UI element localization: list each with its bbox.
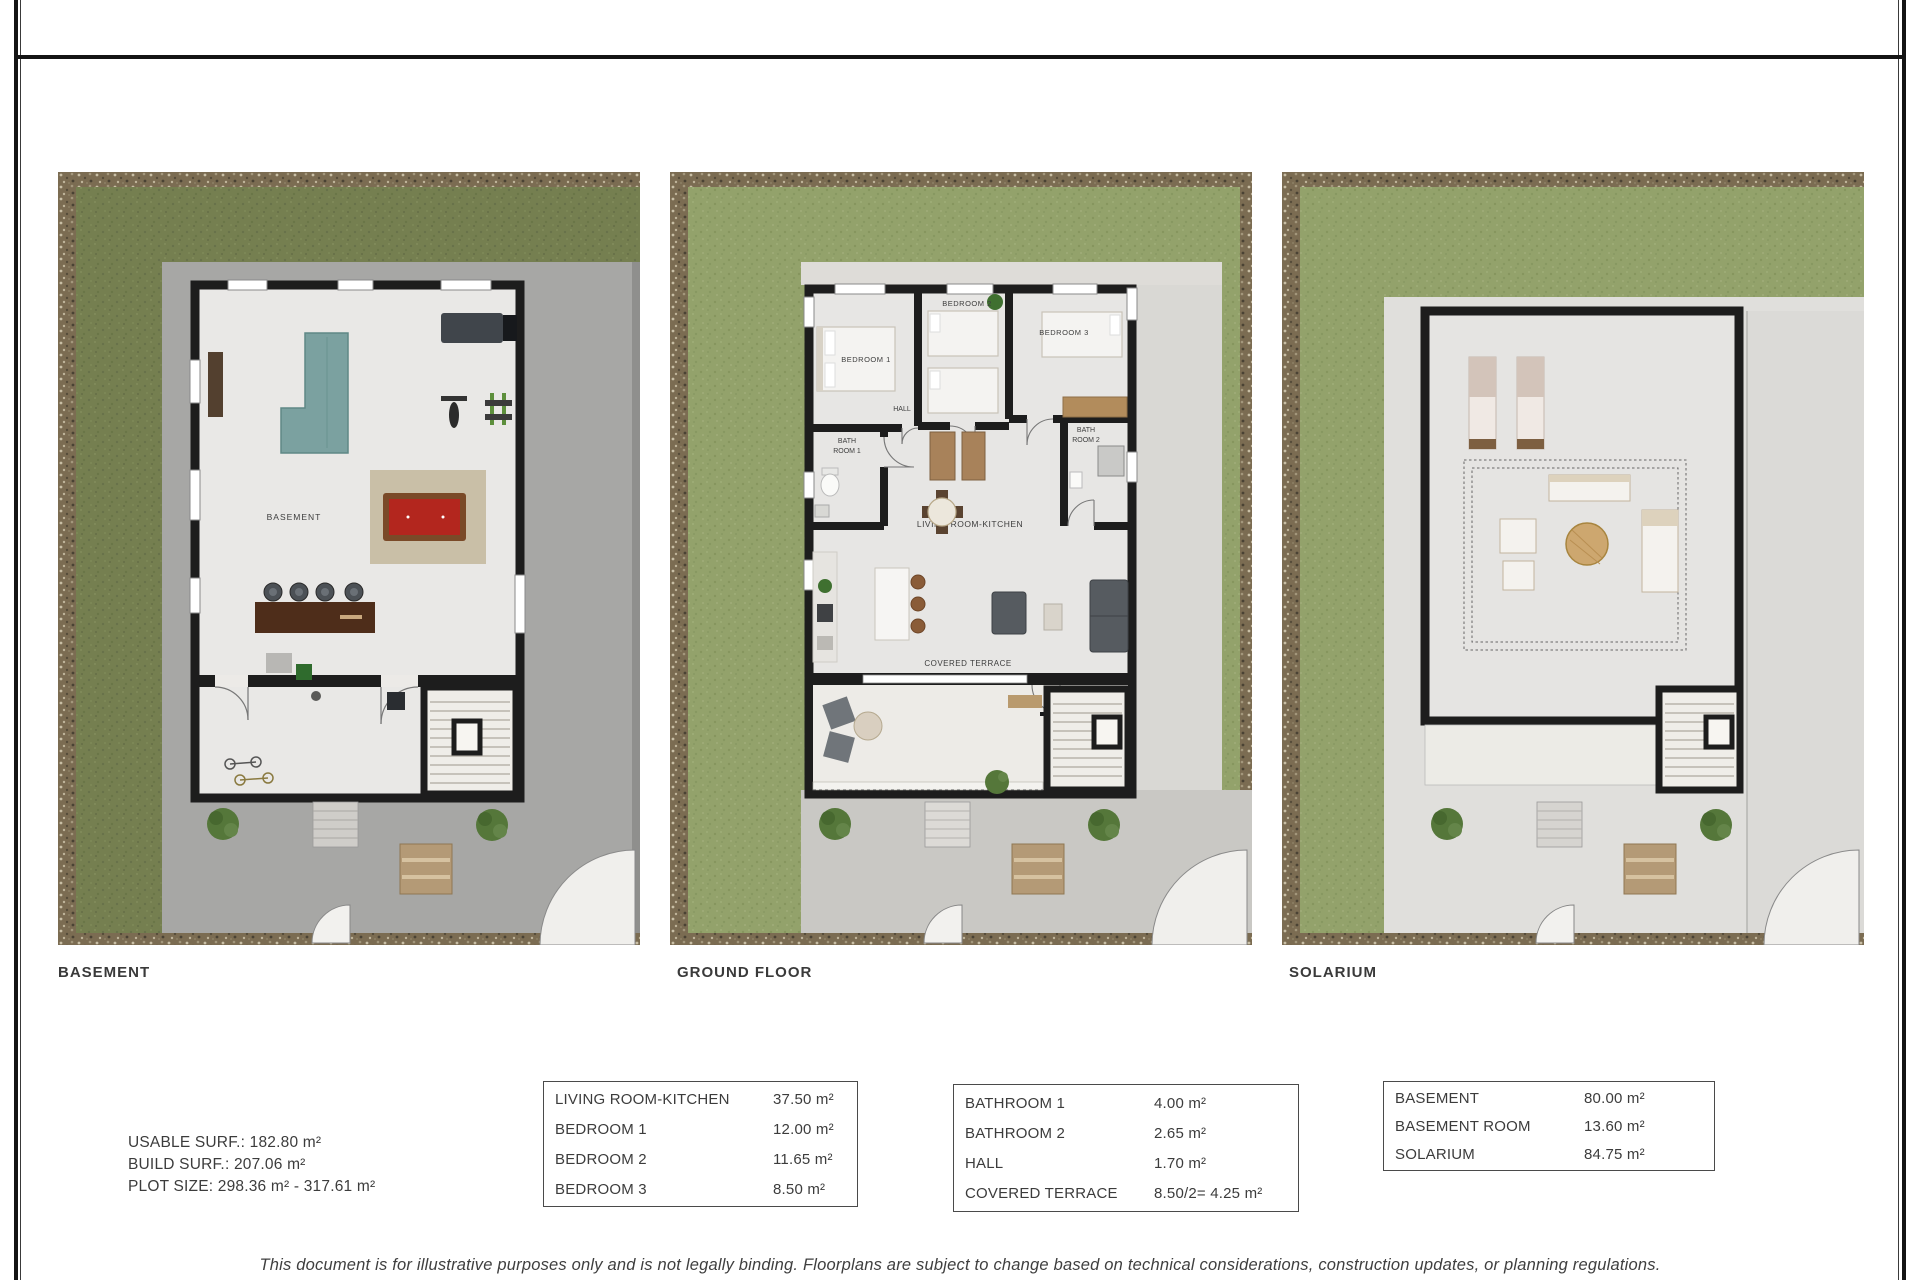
pool-table [383, 493, 466, 541]
area-value-cell: 11.65 m² [773, 1151, 857, 1168]
side-roof-strip [1136, 262, 1222, 858]
area-value-cell: 8.50/2= 4.25 m² [1154, 1185, 1298, 1202]
stairs [1047, 689, 1128, 790]
armchair [992, 592, 1026, 634]
area-value-cell: 1.70 m² [1154, 1155, 1298, 1172]
terrace-bench [1008, 695, 1042, 708]
table-row: BEDROOM 3 8.50 m² [544, 1174, 857, 1204]
bush-right [476, 809, 508, 841]
table-row: COVERED TERRACE 8.50/2= 4.25 m² [954, 1178, 1298, 1208]
solarium-plan-panel: SOLARIUM [1282, 172, 1864, 982]
plant [818, 579, 832, 593]
usable-surface-line: USABLE SURF.: 182.80 m² [128, 1132, 375, 1154]
room-label-cell: BATHROOM 1 [954, 1095, 1154, 1112]
room-label-terrace: COVERED TERRACE [924, 659, 1011, 668]
ground-floor-plan-panel: BEDROOM 1 BEDROOM 2 BEDROOM 3 HALL BATH … [670, 172, 1252, 982]
room-label-basement: BASEMENT [267, 512, 322, 522]
bathrooms-areas-table: BATHROOM 1 4.00 m² BATHROOM 2 2.65 m² HA… [953, 1084, 1299, 1212]
toilet [1070, 472, 1082, 488]
room-label-bedroom3: BEDROOM 3 [1039, 328, 1089, 337]
page-border-left [14, 0, 21, 1280]
plan-caption-basement: BASEMENT [58, 964, 150, 981]
bush-left [1431, 808, 1463, 840]
table-row: BASEMENT ROOM 13.60 m² [1384, 1112, 1714, 1140]
area-value-cell: 2.65 m² [1154, 1125, 1298, 1142]
front-steps [925, 802, 970, 847]
concrete-edge [632, 262, 640, 933]
room-label-cell: SOLARIUM [1384, 1146, 1584, 1163]
terrace-window-band [863, 675, 1027, 683]
wardrobe [962, 432, 985, 480]
page-border-right [1898, 0, 1906, 1280]
stairs [1659, 689, 1740, 790]
ground-floorplan-svg: BEDROOM 1 BEDROOM 2 BEDROOM 3 HALL BATH … [670, 172, 1252, 945]
room-label-bath2-line1: BATH [1077, 427, 1095, 434]
room-label-cell: HALL [954, 1155, 1154, 1172]
room-label-cell: BEDROOM 1 [544, 1121, 773, 1138]
levels-areas-table: BASEMENT 80.00 m² BASEMENT ROOM 13.60 m²… [1383, 1081, 1715, 1171]
room-label-cell: BEDROOM 2 [544, 1151, 773, 1168]
kitchen-counter [813, 552, 837, 662]
outdoor-sofa [1549, 475, 1630, 501]
coffee-table [1044, 604, 1062, 630]
pallet-table [1012, 844, 1064, 894]
plan-caption-ground: GROUND FLOOR [677, 964, 812, 981]
door-opening [381, 675, 418, 687]
round-wood-table [1566, 523, 1608, 565]
stairs [424, 687, 516, 794]
table-row: BEDROOM 2 11.65 m² [544, 1144, 857, 1174]
stair-landing [1094, 717, 1120, 747]
solarium-floorplan-svg [1282, 172, 1864, 945]
area-value-cell: 13.60 m² [1584, 1118, 1714, 1135]
plant [296, 664, 312, 680]
basement-plan-panel: BASEMENT [58, 172, 640, 982]
bush-terrace [985, 770, 1009, 794]
plan-caption-solarium: SOLARIUM [1289, 964, 1377, 981]
area-value-cell: 4.00 m² [1154, 1095, 1298, 1112]
build-surface-line: BUILD SURF.: 207.06 m² [128, 1154, 375, 1176]
basement-floorplan-svg: BASEMENT [58, 172, 640, 945]
stair-landing [1706, 717, 1732, 747]
table-row: HALL 1.70 m² [954, 1148, 1298, 1178]
outdoor-chaise [1642, 510, 1678, 592]
front-steps [313, 802, 358, 847]
side-table [266, 653, 292, 673]
bush-right [1700, 809, 1732, 841]
room-label-cell: BASEMENT ROOM [1384, 1118, 1584, 1135]
table-row: BASEMENT 80.00 m² [1384, 1084, 1714, 1112]
table-row: BATHROOM 1 4.00 m² [954, 1088, 1298, 1118]
table-row: BATHROOM 2 2.65 m² [954, 1118, 1298, 1148]
outdoor-chair [1503, 561, 1534, 590]
room-label-hall: HALL [893, 406, 911, 413]
pallet-table [1624, 844, 1676, 894]
bush-right [1088, 809, 1120, 841]
surface-summary: USABLE SURF.: 182.80 m² BUILD SURF.: 207… [128, 1132, 375, 1197]
walkway [801, 262, 1222, 285]
kitchen-island [875, 568, 925, 640]
front-steps [1537, 802, 1582, 847]
table-row: LIVING ROOM-KITCHEN 37.50 m² [544, 1084, 857, 1114]
treadmill [441, 313, 517, 343]
room-label-cell: LIVING ROOM-KITCHEN [544, 1091, 773, 1108]
lower-terrace-roof [1425, 725, 1659, 785]
plot-size-line: PLOT SIZE: 298.36 m² - 317.61 m² [128, 1176, 375, 1198]
room-label-bath1-line2: ROOM 1 [833, 448, 861, 455]
wardrobe [930, 432, 955, 480]
area-value-cell: 8.50 m² [773, 1181, 857, 1198]
room-label-bedroom2: BEDROOM 2 [942, 299, 992, 308]
area-value-cell: 84.75 m² [1584, 1146, 1714, 1163]
area-value-cell: 37.50 m² [773, 1091, 857, 1108]
wall-shelf [208, 352, 223, 417]
room-label-bedroom1: BEDROOM 1 [841, 355, 891, 364]
bush-left [207, 808, 239, 840]
area-value-cell: 80.00 m² [1584, 1090, 1714, 1107]
room-label-bath2-line2: ROOM 2 [1072, 437, 1100, 444]
page-border-top [14, 55, 1906, 59]
desk [1063, 397, 1127, 417]
outdoor-chair [1500, 519, 1536, 553]
shower [1098, 446, 1124, 476]
utility-box [387, 692, 405, 710]
sink [815, 505, 829, 517]
kitchen-sink [817, 604, 833, 622]
stair-landing [454, 721, 480, 753]
room-label-cell: BASEMENT [1384, 1090, 1584, 1107]
area-value-cell: 12.00 m² [773, 1121, 857, 1138]
room-label-cell: BEDROOM 3 [544, 1181, 773, 1198]
table-row: BEDROOM 1 12.00 m² [544, 1114, 857, 1144]
room-label-cell: COVERED TERRACE [954, 1185, 1154, 1202]
disclaimer-text: This document is for illustrative purpos… [0, 1256, 1920, 1275]
room-label-cell: BATHROOM 2 [954, 1125, 1154, 1142]
side-roof-strip [1747, 311, 1864, 933]
bush-left [819, 808, 851, 840]
toilet [821, 468, 839, 496]
room-label-bath1-line1: BATH [838, 438, 856, 445]
utility-item [311, 691, 321, 701]
pallet-table [400, 844, 452, 894]
door-opening [215, 675, 248, 687]
table-row: SOLARIUM 84.75 m² [1384, 1140, 1714, 1168]
bar-counter [255, 602, 375, 633]
room-areas-table: LIVING ROOM-KITCHEN 37.50 m² BEDROOM 1 1… [543, 1081, 858, 1207]
